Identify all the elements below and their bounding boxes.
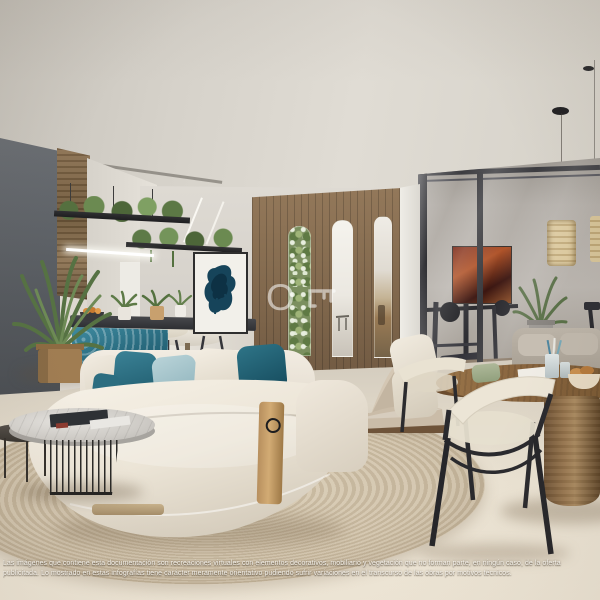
plank-ring-handle [266, 418, 281, 433]
disclaimer-line-2: publicitada. Lo mostrado en estas infogr… [3, 569, 598, 579]
disclaimer-line-1: Las imágenes que contiene esta documenta… [3, 559, 598, 569]
watermark: O [266, 280, 337, 316]
dining-chair-front [415, 358, 560, 558]
marble-coffee-table [8, 406, 156, 502]
sofa-armrest [296, 380, 368, 472]
bowl [568, 374, 600, 389]
sofa-wood-foot [92, 504, 164, 515]
abstract-artwork [193, 252, 248, 334]
side-table-leg [4, 438, 6, 478]
bread-bowl [568, 366, 600, 396]
ceiling-spotlight [583, 66, 594, 71]
sofa-wood-plank [257, 402, 285, 505]
counter-plant-pot-3 [164, 288, 196, 320]
watermark-letter: O [266, 280, 295, 316]
interior-render-photo: O Las imágenes que contiene esta documen… [0, 0, 600, 600]
key-icon [307, 285, 337, 311]
artwork-paint-blob [195, 254, 246, 332]
wire-base [38, 440, 124, 495]
disclaimer-text: Las imágenes que contiene esta documenta… [3, 559, 598, 580]
arch-view-furniture-smudge [378, 305, 385, 325]
small-red-object [56, 422, 68, 428]
trailing-vine [172, 251, 174, 267]
